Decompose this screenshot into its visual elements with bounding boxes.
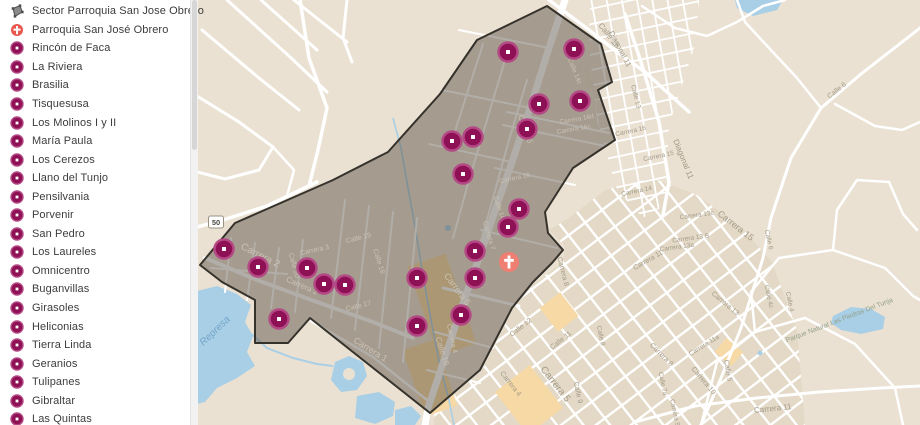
layer-item-label: Tierra Linda [32,339,92,351]
neighborhood-pin-icon [10,60,24,74]
layer-item-label: Las Quintas [32,413,92,425]
layer-item-label: Tisquesusa [32,98,89,110]
neighborhood-pin-icon [10,394,24,408]
layer-item-label: Sector Parroquia San Jose Obrero [32,5,204,17]
layer-item[interactable]: Los Molinos I y II [10,113,190,132]
neighborhood-pin-icon [10,357,24,371]
neighborhood-marker[interactable] [315,275,334,294]
layer-item-label: Omnicentro [32,265,90,277]
layer-item-label: Tulipanes [32,376,80,388]
neighborhood-marker[interactable] [530,95,549,114]
layer-item[interactable]: Rincón de Faca [10,39,190,58]
neighborhood-pin-icon [10,412,24,425]
layer-item-label: Rincón de Faca [32,42,110,54]
neighborhood-marker[interactable] [298,259,317,278]
neighborhood-marker[interactable] [408,317,427,336]
sidebar-scrollbar-thumb[interactable] [192,0,197,150]
neighborhood-pin-icon [10,282,24,296]
layer-item-label: Los Cerezos [32,154,95,166]
neighborhood-marker[interactable] [571,92,590,111]
neighborhood-marker[interactable] [466,242,485,261]
layer-item[interactable]: Los Laureles [10,243,190,262]
neighborhood-marker[interactable] [443,132,462,151]
layer-item-label: Brasilia [32,79,69,91]
neighborhood-marker[interactable] [452,306,471,325]
lagoon-island [343,368,355,380]
neighborhood-pin-icon [10,208,24,222]
svg-text:50: 50 [212,218,220,227]
neighborhood-pin-icon [10,264,24,278]
layer-item-label: Los Laureles [32,246,96,258]
neighborhood-pin-icon [10,320,24,334]
layer-item[interactable]: María Paula [10,132,190,151]
neighborhood-pin-icon [10,116,24,130]
neighborhood-pin-icon [10,190,24,204]
neighborhood-pin-icon [10,338,24,352]
layer-item-label: Gibraltar [32,395,75,407]
layer-item[interactable]: La Riviera [10,58,190,77]
layer-item-label: Los Molinos I y II [32,117,116,129]
layer-item[interactable]: Los Cerezos [10,150,190,169]
layer-item[interactable]: Las Quintas [10,410,190,425]
neighborhood-marker[interactable] [249,258,268,277]
layer-item[interactable]: Heliconias [10,317,190,336]
neighborhood-marker[interactable] [565,40,584,59]
neighborhood-pin-icon [10,97,24,111]
layer-item[interactable]: Omnicentro [10,262,190,281]
layers-sidebar: Sector Parroquia San Jose ObreroParroqui… [0,0,190,425]
neighborhood-pin-icon [10,153,24,167]
neighborhood-pin-icon [10,375,24,389]
layer-item[interactable]: Porvenir [10,206,190,225]
layer-item[interactable]: Pensilvania [10,187,190,206]
neighborhood-marker[interactable] [454,165,473,184]
layer-item-label: Pensilvania [32,191,89,203]
layer-item[interactable]: Tisquesusa [10,95,190,114]
small-pond [758,351,763,356]
sidebar-scrollbar[interactable] [190,0,198,425]
my-maps-window: { "sidebar": { "items": [ {"label": "Sec… [0,0,920,425]
layer-item-label: María Paula [32,135,92,147]
neighborhood-pin-icon [10,301,24,315]
neighborhood-pin-icon [10,227,24,241]
layer-item[interactable]: San Pedro [10,225,190,244]
neighborhood-marker[interactable] [499,43,518,62]
neighborhood-marker[interactable] [336,276,355,295]
layer-item-label: Llano del Tunjo [32,172,108,184]
layer-item[interactable]: Brasilia [10,76,190,95]
polygon-layer-icon [10,4,24,18]
neighborhood-pin-icon [10,134,24,148]
layer-item-sector[interactable]: Sector Parroquia San Jose Obrero [10,2,190,21]
layer-item[interactable]: Gibraltar [10,391,190,410]
layer-item-label: Geranios [32,358,77,370]
layer-item-label: San Pedro [32,228,85,240]
layer-item-label: Buganvillas [32,283,89,295]
neighborhood-marker[interactable] [466,269,485,288]
neighborhood-marker[interactable] [408,269,427,288]
church-marker[interactable] [499,252,519,272]
neighborhood-pin-icon [10,171,24,185]
layer-item[interactable]: Tulipanes [10,373,190,392]
church-pin-icon [10,23,24,37]
layer-item[interactable]: Girasoles [10,299,190,318]
layer-item-label: Girasoles [32,302,79,314]
neighborhood-marker[interactable] [464,128,483,147]
layer-item-label: La Riviera [32,61,83,73]
neighborhood-pin-icon [10,78,24,92]
layer-item-label: Parroquia San José Obrero [32,24,168,36]
layer-item[interactable]: Parroquia San José Obrero [10,21,190,40]
layer-item[interactable]: Llano del Tunjo [10,169,190,188]
map-canvas[interactable]: Carrera 2Carrera 2Carrera 1Carrera 3Call… [197,0,920,425]
neighborhood-pin-icon [10,41,24,55]
route-50-shield: 50 [209,216,224,228]
layer-item-label: Heliconias [32,321,84,333]
neighborhood-marker[interactable] [510,200,529,219]
neighborhood-marker[interactable] [499,218,518,237]
map-area[interactable]: Carrera 2Carrera 2Carrera 1Carrera 3Call… [197,0,920,425]
layer-item[interactable]: Buganvillas [10,280,190,299]
layer-item[interactable]: Geranios [10,354,190,373]
layer-item[interactable]: Tierra Linda [10,336,190,355]
neighborhood-pin-icon [10,245,24,259]
neighborhood-marker[interactable] [518,120,537,139]
neighborhood-marker[interactable] [215,240,234,259]
layer-item-list: Sector Parroquia San Jose ObreroParroqui… [0,0,190,425]
neighborhood-marker[interactable] [270,310,289,329]
layer-item-label: Porvenir [32,209,74,221]
